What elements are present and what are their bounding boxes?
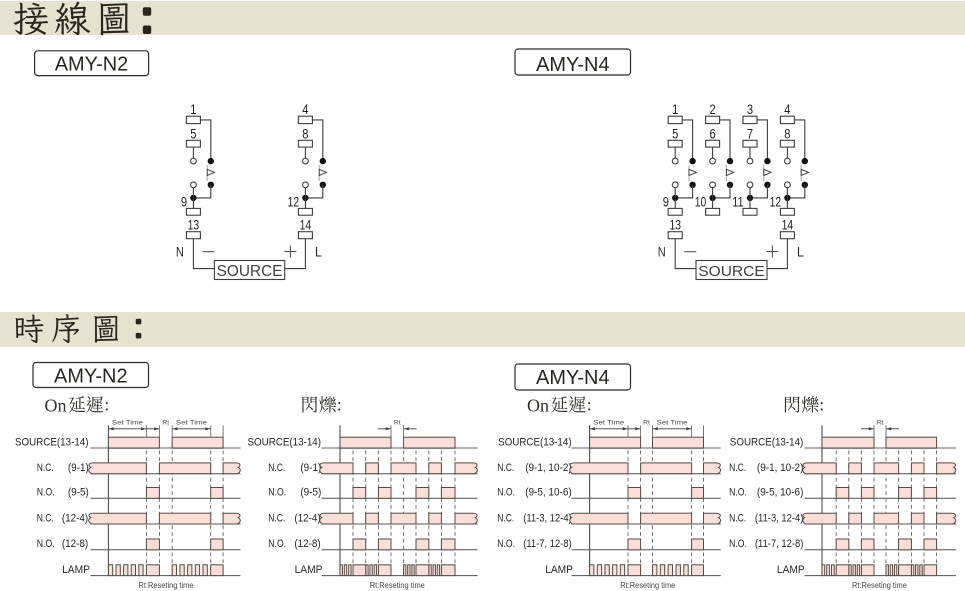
- svg-text:(9-5, 10-6): (9-5, 10-6): [525, 487, 572, 499]
- svg-text:N.O.: N.O.: [497, 538, 515, 550]
- svg-text:14: 14: [300, 217, 312, 233]
- svg-text::: :: [337, 395, 342, 415]
- svg-text:8: 8: [302, 125, 308, 141]
- svg-text:Rt:Reseting time: Rt:Reseting time: [852, 581, 907, 590]
- svg-text:N: N: [176, 244, 184, 259]
- svg-text:4: 4: [302, 101, 308, 117]
- svg-text:N.O.: N.O.: [268, 487, 286, 499]
- svg-text:L: L: [315, 244, 322, 259]
- svg-text:N: N: [658, 244, 666, 259]
- svg-text:10: 10: [695, 193, 707, 209]
- svg-text:(9-1, 10-2): (9-1, 10-2): [757, 462, 804, 474]
- svg-text:(9-1): (9-1): [68, 462, 89, 474]
- svg-text:5: 5: [672, 125, 678, 141]
- svg-text:(9-1): (9-1): [300, 462, 321, 474]
- svg-text:Rt: Rt: [877, 419, 884, 426]
- svg-text:Rt: Rt: [643, 419, 650, 426]
- svg-text:N.O.: N.O.: [729, 538, 747, 550]
- svg-text:N.C.: N.C.: [37, 462, 54, 474]
- svg-text:N.O.: N.O.: [729, 487, 747, 499]
- svg-text:6: 6: [710, 125, 716, 141]
- svg-text:LAMP: LAMP: [545, 564, 573, 576]
- svg-text:Rt:Reseting time: Rt:Reseting time: [370, 581, 425, 590]
- svg-text:(9-5): (9-5): [68, 487, 89, 499]
- svg-text:8: 8: [784, 125, 790, 141]
- svg-text:(11-3, 12-4): (11-3, 12-4): [523, 512, 572, 524]
- svg-text:N.C.: N.C.: [268, 512, 285, 524]
- svg-text::: :: [819, 395, 824, 415]
- svg-text:AMY-N2: AMY-N2: [55, 54, 129, 76]
- svg-text:Set Time: Set Time: [593, 419, 624, 426]
- svg-text:L: L: [797, 244, 804, 259]
- svg-text:(12-4): (12-4): [62, 512, 88, 524]
- svg-text:5: 5: [190, 125, 196, 141]
- svg-text:On: On: [527, 396, 549, 416]
- svg-text:Set Time: Set Time: [176, 419, 207, 426]
- svg-text:SOURCE: SOURCE: [217, 263, 283, 280]
- svg-text:Set Time: Set Time: [112, 419, 143, 426]
- svg-text:N.O.: N.O.: [37, 487, 55, 499]
- svg-text:(11-3, 12-4): (11-3, 12-4): [755, 512, 804, 524]
- svg-text:(9-5): (9-5): [300, 487, 321, 499]
- svg-text::: :: [104, 395, 109, 415]
- svg-text:(9-1, 10-2): (9-1, 10-2): [525, 462, 572, 474]
- svg-text:(12-4): (12-4): [294, 512, 320, 524]
- svg-text:13: 13: [188, 217, 200, 233]
- svg-text:SOURCE(13-14): SOURCE(13-14): [730, 436, 804, 448]
- svg-text:(12-8): (12-8): [62, 538, 88, 550]
- svg-text:(11-7, 12-8): (11-7, 12-8): [523, 538, 572, 550]
- svg-text:Rt:Reseting time: Rt:Reseting time: [620, 581, 675, 590]
- svg-text:N.C.: N.C.: [497, 462, 514, 474]
- svg-text:Rt: Rt: [162, 419, 169, 426]
- svg-text:AMY-N2: AMY-N2: [54, 366, 128, 388]
- svg-text:(12-8): (12-8): [294, 538, 320, 550]
- svg-text:(11-7, 12-8): (11-7, 12-8): [755, 538, 804, 550]
- svg-text:11: 11: [732, 193, 744, 209]
- svg-text:9: 9: [663, 193, 669, 209]
- svg-text:N.C.: N.C.: [497, 512, 514, 524]
- svg-text:LAMP: LAMP: [295, 564, 323, 576]
- svg-text:N.O.: N.O.: [268, 538, 286, 550]
- svg-text:SOURCE(13-14): SOURCE(13-14): [498, 436, 572, 448]
- svg-text:SOURCE(13-14): SOURCE(13-14): [15, 436, 89, 448]
- svg-text:(9-5, 10-6): (9-5, 10-6): [757, 487, 804, 499]
- svg-text:SOURCE: SOURCE: [698, 263, 765, 280]
- svg-text:3: 3: [747, 101, 753, 117]
- svg-text:9: 9: [181, 193, 187, 209]
- svg-text:12: 12: [288, 193, 300, 209]
- svg-text::: :: [587, 395, 592, 415]
- svg-text:N.C.: N.C.: [729, 512, 746, 524]
- svg-text:1: 1: [190, 101, 196, 117]
- svg-text:2: 2: [710, 101, 716, 117]
- svg-text:N.O.: N.O.: [37, 538, 55, 550]
- svg-text:On: On: [45, 396, 67, 416]
- svg-text:12: 12: [770, 193, 782, 209]
- svg-text:Rt:Reseting time: Rt:Reseting time: [139, 581, 194, 590]
- svg-text:N.C.: N.C.: [729, 462, 746, 474]
- svg-text:4: 4: [784, 101, 790, 117]
- svg-text:SOURCE(13-14): SOURCE(13-14): [248, 436, 322, 448]
- svg-text:LAMP: LAMP: [777, 564, 805, 576]
- svg-text:Rt: Rt: [394, 419, 401, 426]
- svg-text:N.O.: N.O.: [497, 487, 515, 499]
- svg-text:14: 14: [782, 217, 794, 233]
- svg-text:1: 1: [672, 101, 678, 117]
- svg-text:AMY-N4: AMY-N4: [536, 54, 610, 76]
- svg-text:Set Time: Set Time: [657, 419, 688, 426]
- svg-text:13: 13: [669, 217, 681, 233]
- svg-text:LAMP: LAMP: [62, 564, 90, 576]
- svg-text:AMY-N4: AMY-N4: [536, 367, 610, 389]
- svg-text:7: 7: [747, 125, 753, 141]
- svg-text:N.C.: N.C.: [37, 512, 54, 524]
- svg-text:N.C.: N.C.: [268, 462, 285, 474]
